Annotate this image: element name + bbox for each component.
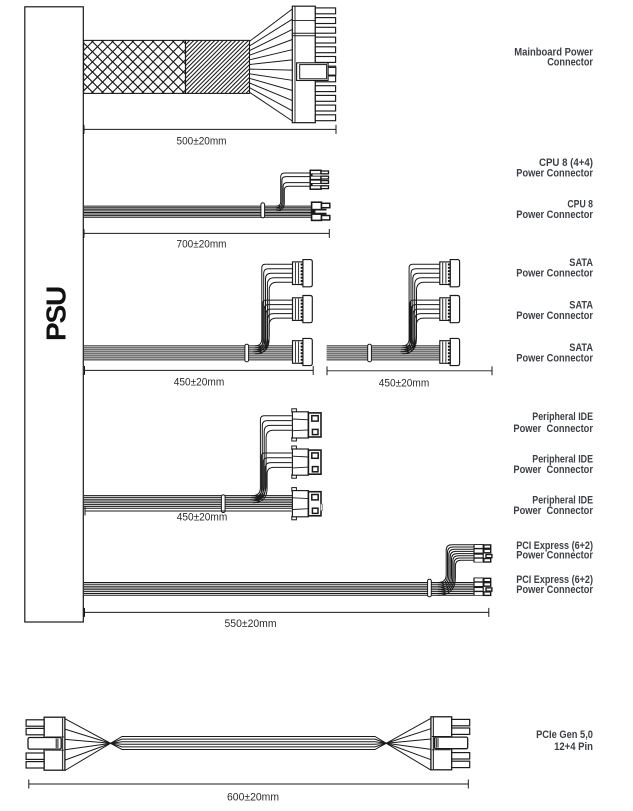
svg-text:Power Connector: Power Connector [516,352,593,364]
svg-text:Peripheral IDE: Peripheral IDE [532,411,593,423]
svg-text:Power Connector: Power Connector [513,464,593,476]
svg-text:Power Connector: Power Connector [516,267,593,279]
svg-text:Power Connector: Power Connector [516,209,593,221]
svg-text:PSU: PSU [41,287,72,341]
svg-text:500±20mm: 500±20mm [177,136,227,148]
svg-text:Power Connector: Power Connector [516,167,593,179]
svg-text:700±20mm: 700±20mm [177,238,227,250]
svg-text:450±20mm: 450±20mm [177,511,228,523]
svg-text:Power Connector: Power Connector [516,584,593,596]
svg-text:Power Connector: Power Connector [513,505,593,517]
svg-text:12+4 Pin: 12+4 Pin [554,741,593,753]
svg-text:Connector: Connector [547,57,593,69]
svg-text:450±20mm: 450±20mm [174,377,225,389]
svg-text:600±20mm: 600±20mm [227,791,279,803]
svg-text:Power Connector: Power Connector [513,423,593,435]
svg-text:PCIe Gen 5,0: PCIe Gen 5,0 [536,729,593,741]
svg-text:450±20mm: 450±20mm [379,377,430,389]
svg-text:Power Connector: Power Connector [516,550,593,562]
svg-text:Power Connector: Power Connector [516,310,593,322]
svg-text:550±20mm: 550±20mm [225,618,277,630]
